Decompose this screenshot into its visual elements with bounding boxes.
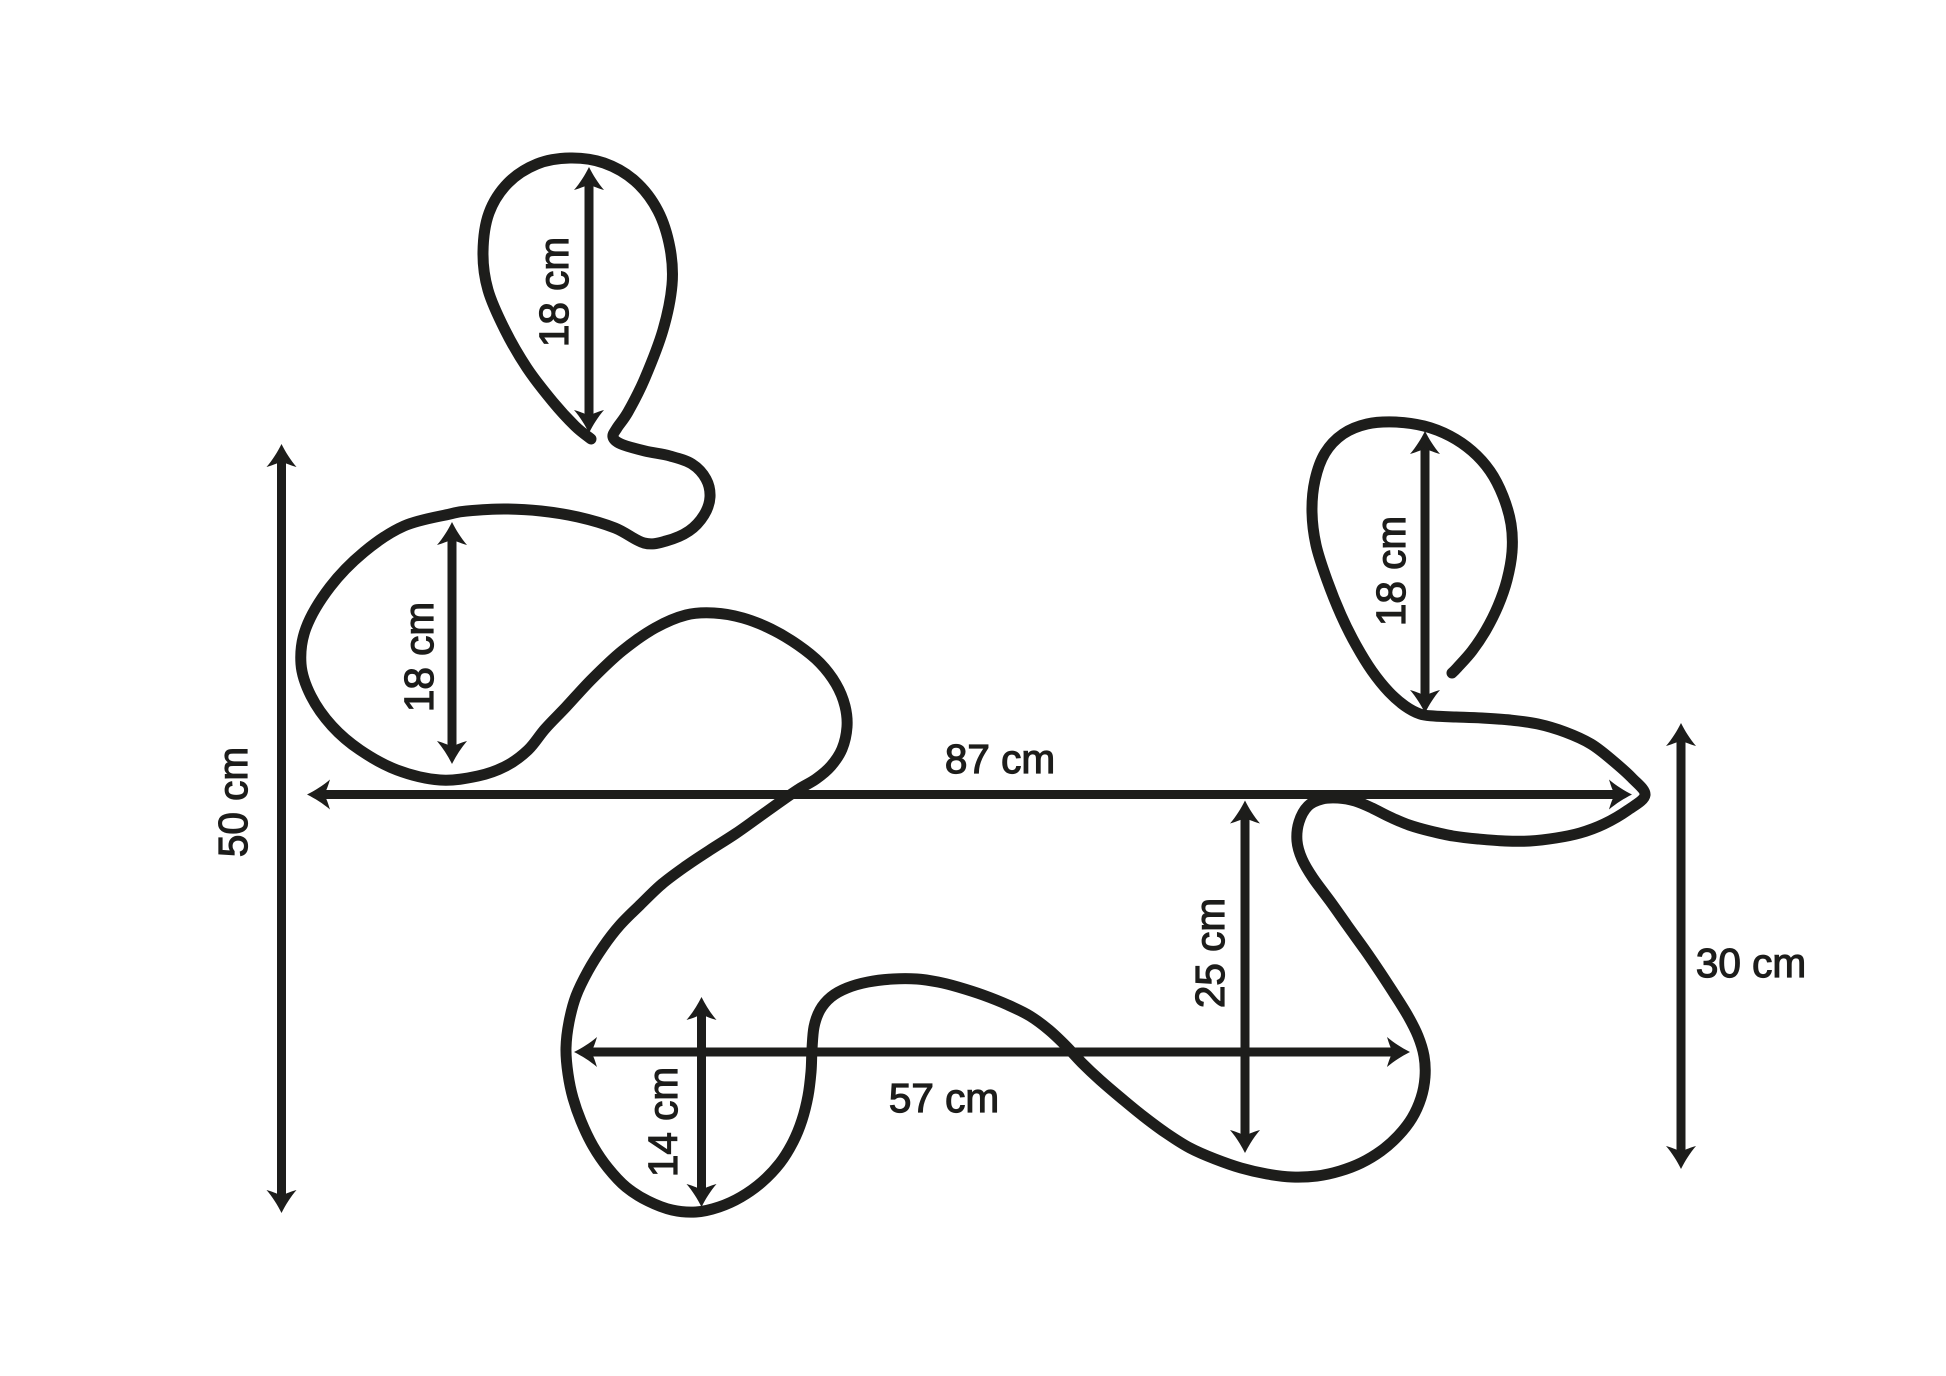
svg-text:18 cm: 18 cm — [1368, 516, 1414, 626]
svg-text:30 cm: 30 cm — [1696, 940, 1806, 986]
svg-text:57 cm: 57 cm — [889, 1075, 999, 1121]
svg-text:25 cm: 25 cm — [1187, 898, 1233, 1008]
svg-text:18 cm: 18 cm — [531, 237, 577, 347]
svg-text:50 cm: 50 cm — [210, 747, 256, 857]
svg-text:14 cm: 14 cm — [640, 1067, 686, 1177]
svg-text:18 cm: 18 cm — [396, 602, 442, 712]
svg-text:87 cm: 87 cm — [945, 736, 1055, 782]
